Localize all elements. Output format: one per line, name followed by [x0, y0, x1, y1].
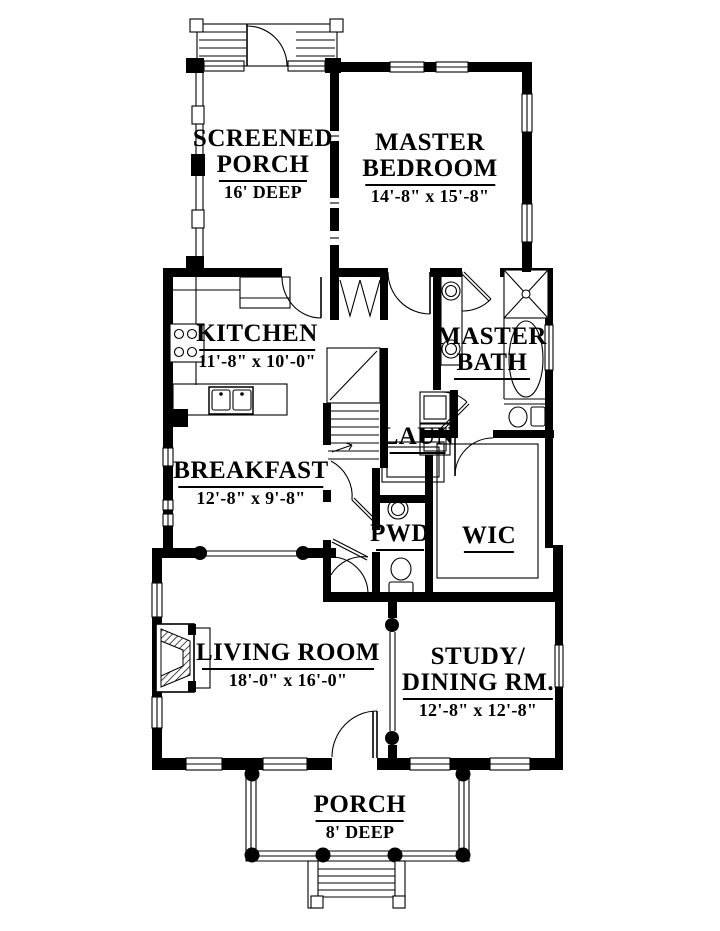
room-name: BREAKFAST: [173, 458, 328, 484]
room-name: PORCH: [314, 792, 407, 818]
room-name: PWD: [370, 521, 430, 547]
room-label-living-room: LIVING ROOM 18'-0" x 16'-0": [196, 640, 380, 690]
room-label-master-bedroom: MASTER BEDROOM 14'-8" x 15'-8": [362, 130, 497, 206]
room-name: KITCHEN: [196, 321, 318, 347]
bath-entry-door: [462, 272, 491, 311]
bedroom-closet: [330, 277, 388, 320]
room-label-screened-porch: SCREENED PORCH 16' DEEP: [193, 126, 333, 202]
label-rule: [390, 452, 446, 454]
room-label-study-dining: STUDY/ DINING RM. 12'-8" x 12'-8": [402, 644, 554, 720]
porch-steps: [308, 861, 405, 908]
shower-icon: [504, 266, 548, 318]
room-dimension: 18'-0" x 16'-0": [196, 671, 380, 690]
room-dimension: 14'-8" x 15'-8": [362, 187, 497, 206]
room-name: PORCH: [193, 152, 333, 178]
room-name: BEDROOM: [362, 156, 497, 182]
room-name: BATH: [437, 350, 547, 376]
front-door: [332, 711, 377, 758]
room-dimension: 16' DEEP: [193, 183, 333, 202]
room-dimension: 11'-8" x 10'-0": [196, 352, 318, 371]
room-name: MASTER: [437, 324, 547, 350]
label-rule: [454, 378, 530, 380]
room-dimension: 12'-8" x 12'-8": [402, 701, 554, 720]
bath-toilet-icon: [509, 407, 545, 427]
room-dimension: 12'-8" x 9'-8": [173, 489, 328, 508]
room-name: WIC: [462, 523, 516, 549]
bedroom-hall-door: [388, 272, 430, 314]
room-label-master-bath: MASTER BATH: [437, 324, 547, 381]
label-rule: [464, 551, 514, 553]
powder-sink-icon: [388, 499, 408, 519]
room-label-powder: PWD: [370, 521, 430, 552]
room-name: LIVING ROOM: [196, 640, 380, 666]
deck-top: [190, 19, 343, 66]
room-name: MASTER: [362, 130, 497, 156]
kitchen-sink-icon: [209, 387, 253, 414]
room-name: LAUN: [382, 424, 455, 450]
room-name: SCREENED: [193, 126, 333, 152]
room-label-porch: PORCH 8' DEEP: [314, 792, 407, 842]
room-label-breakfast: BREAKFAST 12'-8" x 9'-8": [173, 458, 328, 508]
wic-walls: [424, 430, 563, 602]
room-label-laundry: LAUN: [382, 424, 455, 455]
room-name: DINING RM.: [402, 670, 554, 696]
room-name: STUDY/: [402, 644, 554, 670]
label-rule: [376, 549, 424, 551]
stairs: [327, 348, 380, 459]
floor-plan-page: SCREENED PORCH 16' DEEP MASTER BEDROOM 1…: [0, 0, 720, 931]
room-label-wic: WIC: [462, 523, 516, 554]
powder-toilet-icon: [389, 558, 413, 593]
washer-icon: [420, 392, 450, 423]
room-label-kitchen: KITCHEN 11'-8" x 10'-0": [196, 321, 318, 371]
room-dimension: 8' DEEP: [314, 823, 407, 842]
